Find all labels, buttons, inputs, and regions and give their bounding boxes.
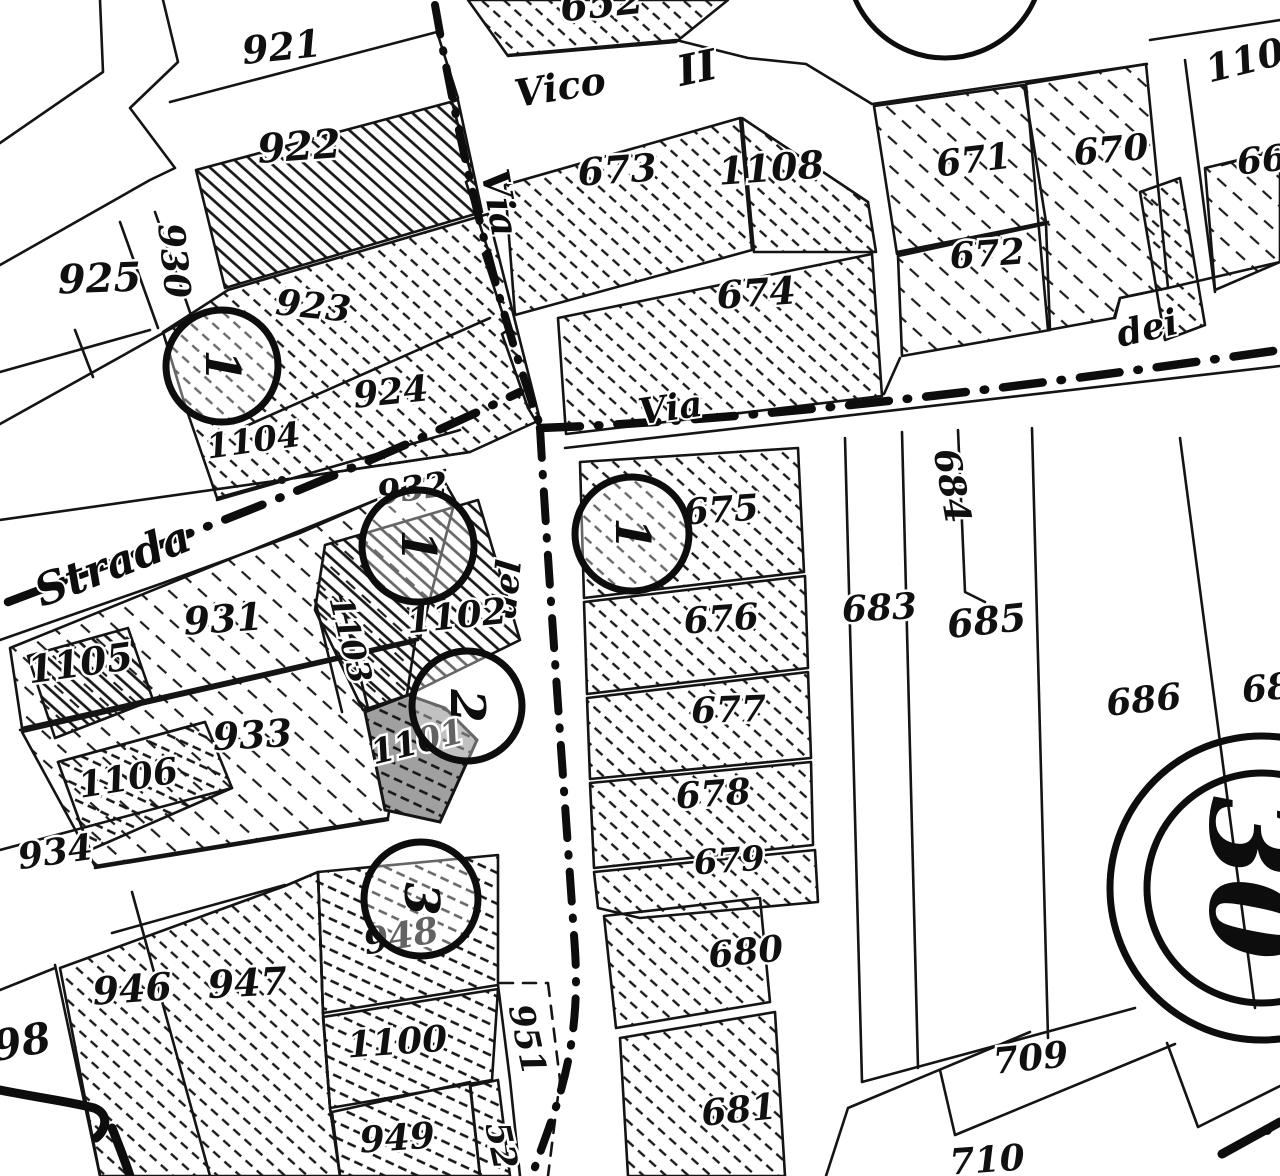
road-segment-se [1222, 1122, 1280, 1154]
parcel-label-110: 110 [1201, 28, 1280, 91]
parcel-label-677: 677 [690, 688, 767, 733]
parcel-label-921: 921 [240, 20, 324, 73]
parcel-label-676: 676 [682, 595, 760, 642]
parcel-label-933: 933 [212, 710, 294, 759]
parcel-label-98: 98 [0, 1013, 55, 1071]
parcel-label-949: 949 [358, 1114, 436, 1161]
parcel-label-685: 685 [945, 594, 1029, 647]
parcel-label-946: 946 [91, 963, 173, 1013]
street-label-vico-2: Vico [511, 57, 609, 116]
parcel-label-930: 930 [149, 221, 199, 300]
parcel-label-675: 675 [682, 486, 760, 533]
parcel-label-680: 680 [706, 927, 785, 977]
survey-ref-digit: 2 [439, 688, 495, 722]
parcel-label-683: 683 [841, 585, 918, 631]
parcel-label-686: 686 [1104, 675, 1183, 725]
street-label-ii-3: II [672, 39, 723, 96]
street-label-dei-5: dei [1112, 301, 1182, 356]
parcel-label-1108: 1108 [717, 141, 826, 193]
cadastral-map-canvas: StradaViaVicoIIViadeidel 921922925930923… [0, 0, 1280, 1176]
survey-ref-3-circled-1: 1 [575, 477, 689, 591]
survey-ref-1-circled-1: 1 [166, 310, 278, 422]
parcel-label-931: 931 [182, 593, 264, 643]
survey-ref-digit: 3 [393, 882, 449, 915]
parcel-label-709: 709 [991, 1033, 1070, 1083]
parcel-label-679: 679 [692, 839, 766, 884]
survey-ref-digit: 1 [604, 517, 660, 550]
parcel-label-923: 923 [274, 281, 353, 331]
parcel-label-934: 934 [15, 826, 95, 878]
parcel-label-922: 922 [256, 120, 343, 173]
parcel-label-678: 678 [674, 770, 752, 817]
parcel-label-672: 672 [948, 230, 1026, 277]
survey-ref-2-circled-1: 1 [362, 490, 474, 602]
survey-ref-digit: 1 [194, 349, 250, 382]
parcel-label-684: 684 [925, 445, 979, 526]
cadastral-map-page: StradaViaVicoIIViadeidel 921922925930923… [0, 0, 1280, 1176]
parcel-label-66: 66 [1235, 137, 1280, 184]
survey-ref-digit: 1 [390, 529, 446, 562]
parcel-label-670: 670 [1072, 126, 1151, 174]
parcel-label-925: 925 [57, 254, 142, 304]
parcel-label-710: 710 [948, 1136, 1026, 1176]
boundary-dot [278, 476, 286, 484]
street-label-via-4: Via [636, 383, 706, 434]
sheet-number-30: 30 [1183, 796, 1280, 960]
parcel-label-947: 947 [207, 958, 289, 1007]
parcel-label-681: 681 [699, 1085, 778, 1135]
parcel-label-68: 68 [1240, 665, 1280, 712]
survey-ref-5-circled-3: 3 [364, 842, 478, 956]
parcel-label-1100: 1100 [346, 1018, 449, 1067]
parcel-label-673: 673 [576, 144, 658, 194]
parcel-label-924: 924 [351, 367, 430, 417]
survey-ref-4-circled-2: 2 [412, 651, 522, 761]
parcel-label-674: 674 [715, 267, 797, 317]
circle-arc-north [847, 0, 1043, 58]
